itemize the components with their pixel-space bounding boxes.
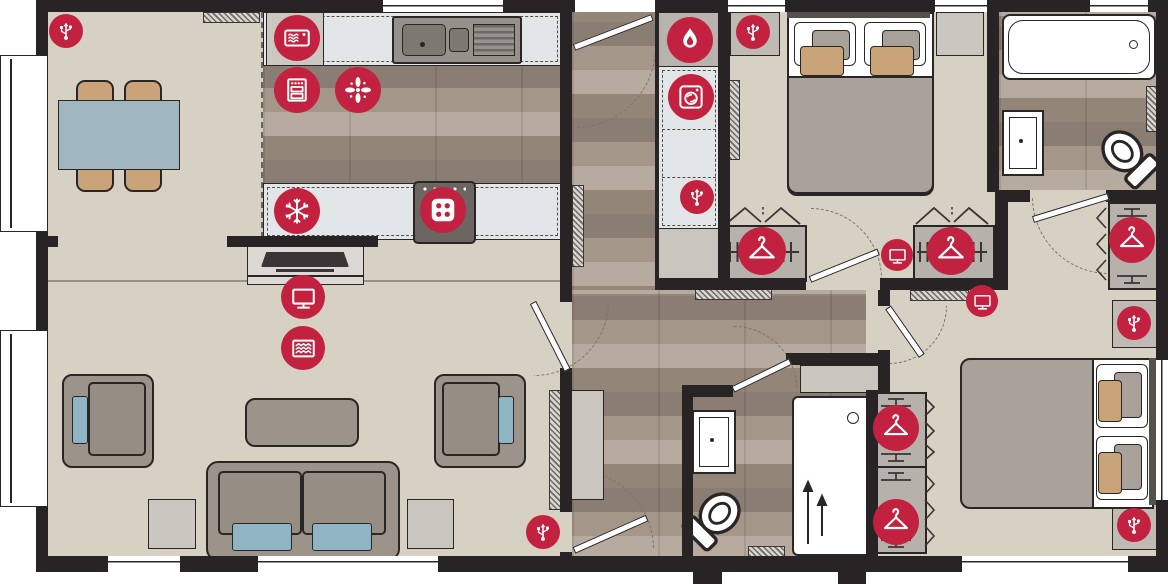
bedside-table-bedroom2 xyxy=(936,12,984,56)
kitchen-peninsula-wall xyxy=(227,236,378,247)
window-bedroom2-right xyxy=(935,0,987,12)
wardrobe-pelmet xyxy=(723,203,803,227)
floor-plan xyxy=(0,0,1168,584)
sofa xyxy=(206,461,400,561)
utility-edge xyxy=(655,12,658,278)
basin-inner xyxy=(699,417,729,467)
wardrobe-icon-bedroom2-left xyxy=(738,227,786,275)
tv-point-icon-bedroom2 xyxy=(881,239,913,271)
bath-inner xyxy=(1008,20,1150,74)
window-kitchen xyxy=(383,0,503,12)
radiator-dining xyxy=(203,12,260,23)
usb-socket-icon-master-top xyxy=(1117,306,1151,340)
wardrobe-icon-master-top xyxy=(873,405,919,451)
wall-hall-west-mid xyxy=(560,368,572,512)
wall-hall-west-upper xyxy=(560,12,572,302)
armchair-seat xyxy=(88,382,146,456)
armchair-cushion xyxy=(498,396,514,444)
wall-shower-room-west xyxy=(682,390,693,556)
wall-shower-room-north xyxy=(786,353,890,365)
window-bathroom xyxy=(1090,0,1148,12)
kitchen-sink-unit xyxy=(392,16,522,64)
wall-bedroom2-south-west xyxy=(655,278,806,290)
wardrobe-folding-doors xyxy=(1094,204,1107,284)
shower-room-shelf xyxy=(800,365,884,393)
tv-point-icon-landing xyxy=(966,285,998,317)
utility-base-cabinet xyxy=(658,228,720,280)
radiator-bedroom2 xyxy=(729,80,740,160)
window-master-right xyxy=(1156,360,1168,500)
extractor-fan-icon xyxy=(335,67,381,113)
basin-dot xyxy=(1019,139,1023,143)
radiator-landing xyxy=(910,290,969,301)
window-bedroom2-left xyxy=(728,0,785,12)
shower-enclosure xyxy=(792,396,873,556)
usb-socket-icon-master-bottom xyxy=(1117,508,1151,542)
bath xyxy=(1002,14,1156,80)
wardrobe-shelf-symbol xyxy=(878,451,914,464)
wardrobe-shelf-symbol xyxy=(878,470,914,483)
wall-stub-left xyxy=(36,236,58,247)
fridge-freezer-icon xyxy=(274,188,320,234)
armchair-seat xyxy=(442,382,500,456)
bay-window-dining xyxy=(0,55,48,232)
wardrobe-pelmet xyxy=(913,203,991,227)
sink-half-bowl xyxy=(449,28,469,52)
shower-room-basin xyxy=(692,410,736,474)
basin-dot xyxy=(710,438,714,442)
master-headboard xyxy=(1149,358,1156,505)
sink-drain-dot xyxy=(420,42,425,47)
tv-stand xyxy=(276,269,334,272)
bed2-headboard xyxy=(787,12,930,18)
wardrobe-folding-doors xyxy=(924,394,937,464)
window-lounge-bottom xyxy=(258,556,438,572)
wall-utility-east xyxy=(718,12,730,278)
appliance-shelf-dashed xyxy=(662,177,716,178)
microwave-icon xyxy=(274,15,320,61)
boiler-icon xyxy=(667,17,713,63)
side-table-left xyxy=(148,499,196,549)
wall-bathroom-south-east xyxy=(1106,190,1156,202)
side-table-right xyxy=(407,499,454,549)
wall-stub-bottom xyxy=(693,572,722,584)
bed2-cushion-tan xyxy=(870,46,914,76)
sofa-pillow xyxy=(232,523,292,551)
hall-cabinet xyxy=(571,390,604,500)
usb-socket-icon-dining xyxy=(49,14,83,48)
radiator-hallway xyxy=(695,289,772,300)
wardrobe-folding-doors xyxy=(924,468,937,550)
wall-bathroom-south-west xyxy=(999,190,1030,202)
wardrobe-shelf-symbol xyxy=(1114,273,1150,286)
armchair-cushion xyxy=(72,396,88,444)
wall-master-west-upper xyxy=(878,290,890,306)
bathroom-vanity-basin xyxy=(1002,110,1044,176)
bay-window-glass-line xyxy=(10,334,12,503)
tv-point-icon-lounge xyxy=(281,275,325,319)
usb-socket-icon-lounge xyxy=(526,515,560,549)
bay-window-lounge xyxy=(0,330,48,507)
coffee-table xyxy=(245,398,359,447)
armchair-left xyxy=(62,374,154,468)
wall-shower-room-north-west xyxy=(682,385,733,397)
master-cushion-tan xyxy=(1098,380,1122,422)
bay-window-glass-line xyxy=(10,59,12,228)
window-lounge-bottom-left xyxy=(108,556,180,572)
sink-bowl xyxy=(402,24,446,56)
radiator-entrance-hall xyxy=(572,185,584,267)
wall-corridor-west xyxy=(995,190,1008,290)
bed2-cushion-tan xyxy=(800,46,844,76)
usb-socket-icon-bedroom2 xyxy=(736,15,770,49)
armchair-right xyxy=(434,374,526,468)
dining-table xyxy=(58,100,180,170)
wall-hall-west-lower xyxy=(560,552,572,558)
front-door-opening xyxy=(575,0,655,12)
wall-bedroom2-bathroom xyxy=(987,12,999,192)
shower-direction-arrows xyxy=(798,456,832,548)
bed2-duvet xyxy=(787,76,934,194)
basin-inner xyxy=(1009,117,1037,169)
shower-drain xyxy=(847,412,859,424)
wardrobe-icon-master-bottom xyxy=(873,499,919,545)
electric-fire-icon xyxy=(281,326,325,370)
oven-icon xyxy=(274,67,320,113)
master-bed-duvet xyxy=(960,358,1098,509)
master-cushion-tan xyxy=(1098,452,1122,494)
usb-socket-icon-hall xyxy=(680,180,714,214)
sink-drainer xyxy=(473,24,515,56)
wardrobe-icon-corridor xyxy=(1109,217,1155,263)
bath-plug xyxy=(1129,40,1138,49)
tv-screen xyxy=(261,252,349,267)
washing-machine-icon xyxy=(668,74,714,120)
wardrobe-icon-bedroom2-right xyxy=(927,227,975,275)
sofa-pillow xyxy=(312,523,372,551)
window-master-bottom xyxy=(962,556,1128,572)
appliance-shelf-dashed xyxy=(662,129,716,130)
hob-icon xyxy=(420,187,466,233)
wall-stub-bottom xyxy=(838,572,866,584)
